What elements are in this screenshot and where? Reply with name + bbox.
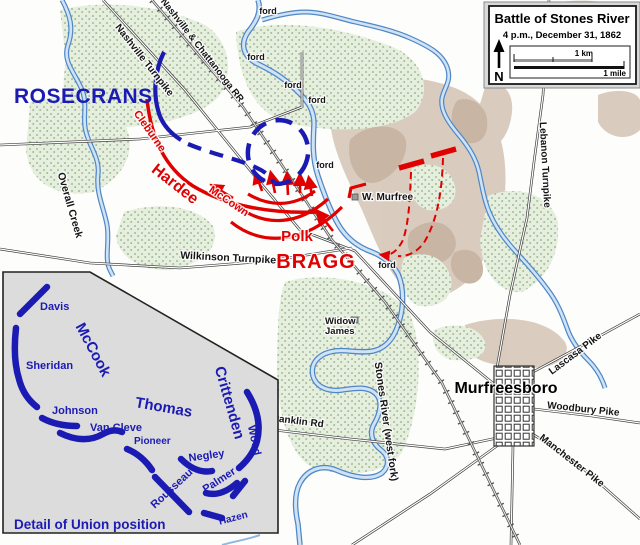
- w-murfree-house-icon: [352, 194, 358, 200]
- north-label: N: [494, 69, 503, 84]
- ford-label: ford: [259, 6, 277, 16]
- inset-caption: Detail of Union position: [14, 517, 166, 532]
- ford-label: ford: [378, 260, 396, 270]
- legend-box: Battle of Stones River 4 p.m., December …: [484, 2, 640, 88]
- inset-label-pioneer: Pioneer: [134, 436, 171, 447]
- inset-label-davis: Davis: [40, 301, 69, 313]
- inset-label-johnson: Johnson: [52, 405, 98, 417]
- label-rosecrans: ROSECRANS: [14, 85, 153, 108]
- scale-mile-label: 1 mile: [603, 69, 626, 78]
- town-grid: [494, 366, 534, 446]
- scale-bar: 1 km 1 mile: [510, 46, 630, 78]
- label-widow-james-2: James: [325, 326, 355, 337]
- label-murfreesboro: Murfreesboro: [454, 380, 557, 397]
- inset-label-van-cleve: Van Cleve: [90, 422, 142, 434]
- inset-label-sheridan: Sheridan: [26, 360, 73, 372]
- scale-km-label: 1 km: [575, 49, 593, 58]
- ford-label: ford: [247, 52, 265, 62]
- label-bragg: BRAGG: [276, 251, 355, 273]
- label-w-murfree: W. Murfree: [362, 192, 414, 203]
- ford-label: ford: [316, 160, 334, 170]
- ford-label: ford: [284, 80, 302, 90]
- map-title: Battle of Stones River: [494, 11, 629, 26]
- battle-map: ROSECRANS Hardee Cleburne McCown Polk BR…: [0, 0, 640, 545]
- ford-label: ford: [308, 95, 326, 105]
- map-canvas: ROSECRANS Hardee Cleburne McCown Polk BR…: [0, 0, 640, 545]
- map-subtitle: 4 p.m., December 31, 1862: [503, 30, 621, 41]
- label-polk: Polk: [281, 228, 313, 245]
